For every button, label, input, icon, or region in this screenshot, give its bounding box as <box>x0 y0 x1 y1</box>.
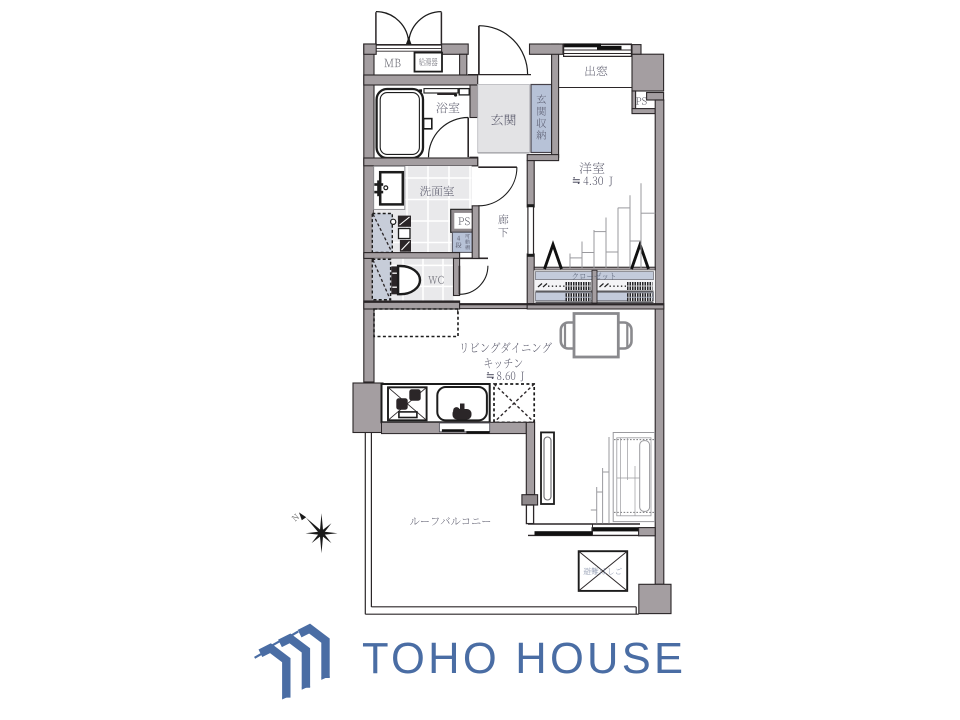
svg-text:TOHO HOUSE: TOHO HOUSE <box>362 635 683 683</box>
